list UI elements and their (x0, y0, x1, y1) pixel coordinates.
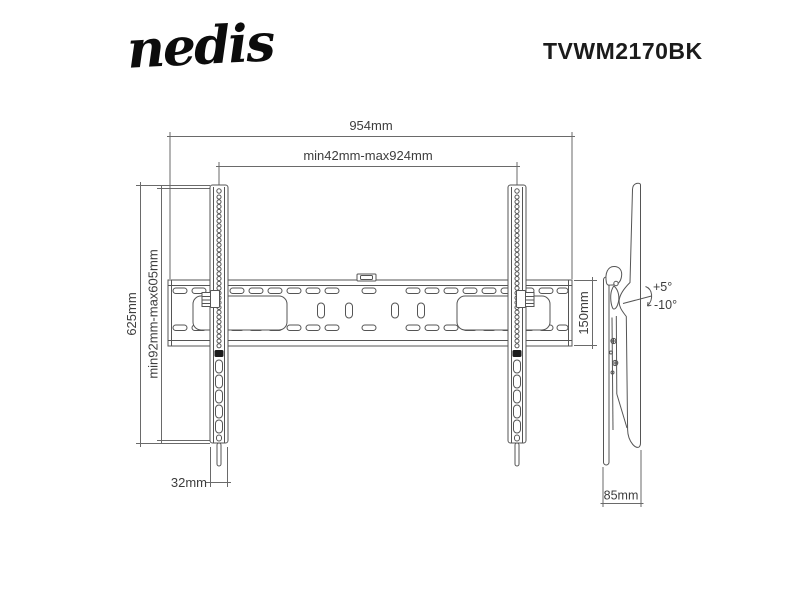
side-tv-plate (619, 183, 640, 447)
tilt-down-label: -10° (654, 298, 677, 312)
dim-width-range: min42mm-max924mm (303, 148, 432, 163)
rail-left-lock-knob (215, 350, 224, 357)
side-wall-plate (604, 277, 610, 465)
dim-depth: 85mm (604, 489, 639, 503)
vesa-plate-outline-right (457, 296, 550, 330)
dim-rail-width: 32mm (171, 475, 207, 490)
dim-height-total: 625mm (124, 292, 139, 335)
side-view (604, 183, 652, 465)
dim-width-total: 954mm (349, 118, 392, 133)
tilt-up-label: +5° (653, 280, 672, 294)
dim-bar-height: 150mm (576, 291, 591, 334)
side-hinge-leaf (611, 286, 619, 309)
rail-right-lock-knob (513, 350, 522, 357)
dim-height-range: min92mm-max605mm (146, 249, 161, 378)
technical-drawing: 954mm min42mm-max924mm 625mm min92mm-max… (0, 0, 800, 600)
